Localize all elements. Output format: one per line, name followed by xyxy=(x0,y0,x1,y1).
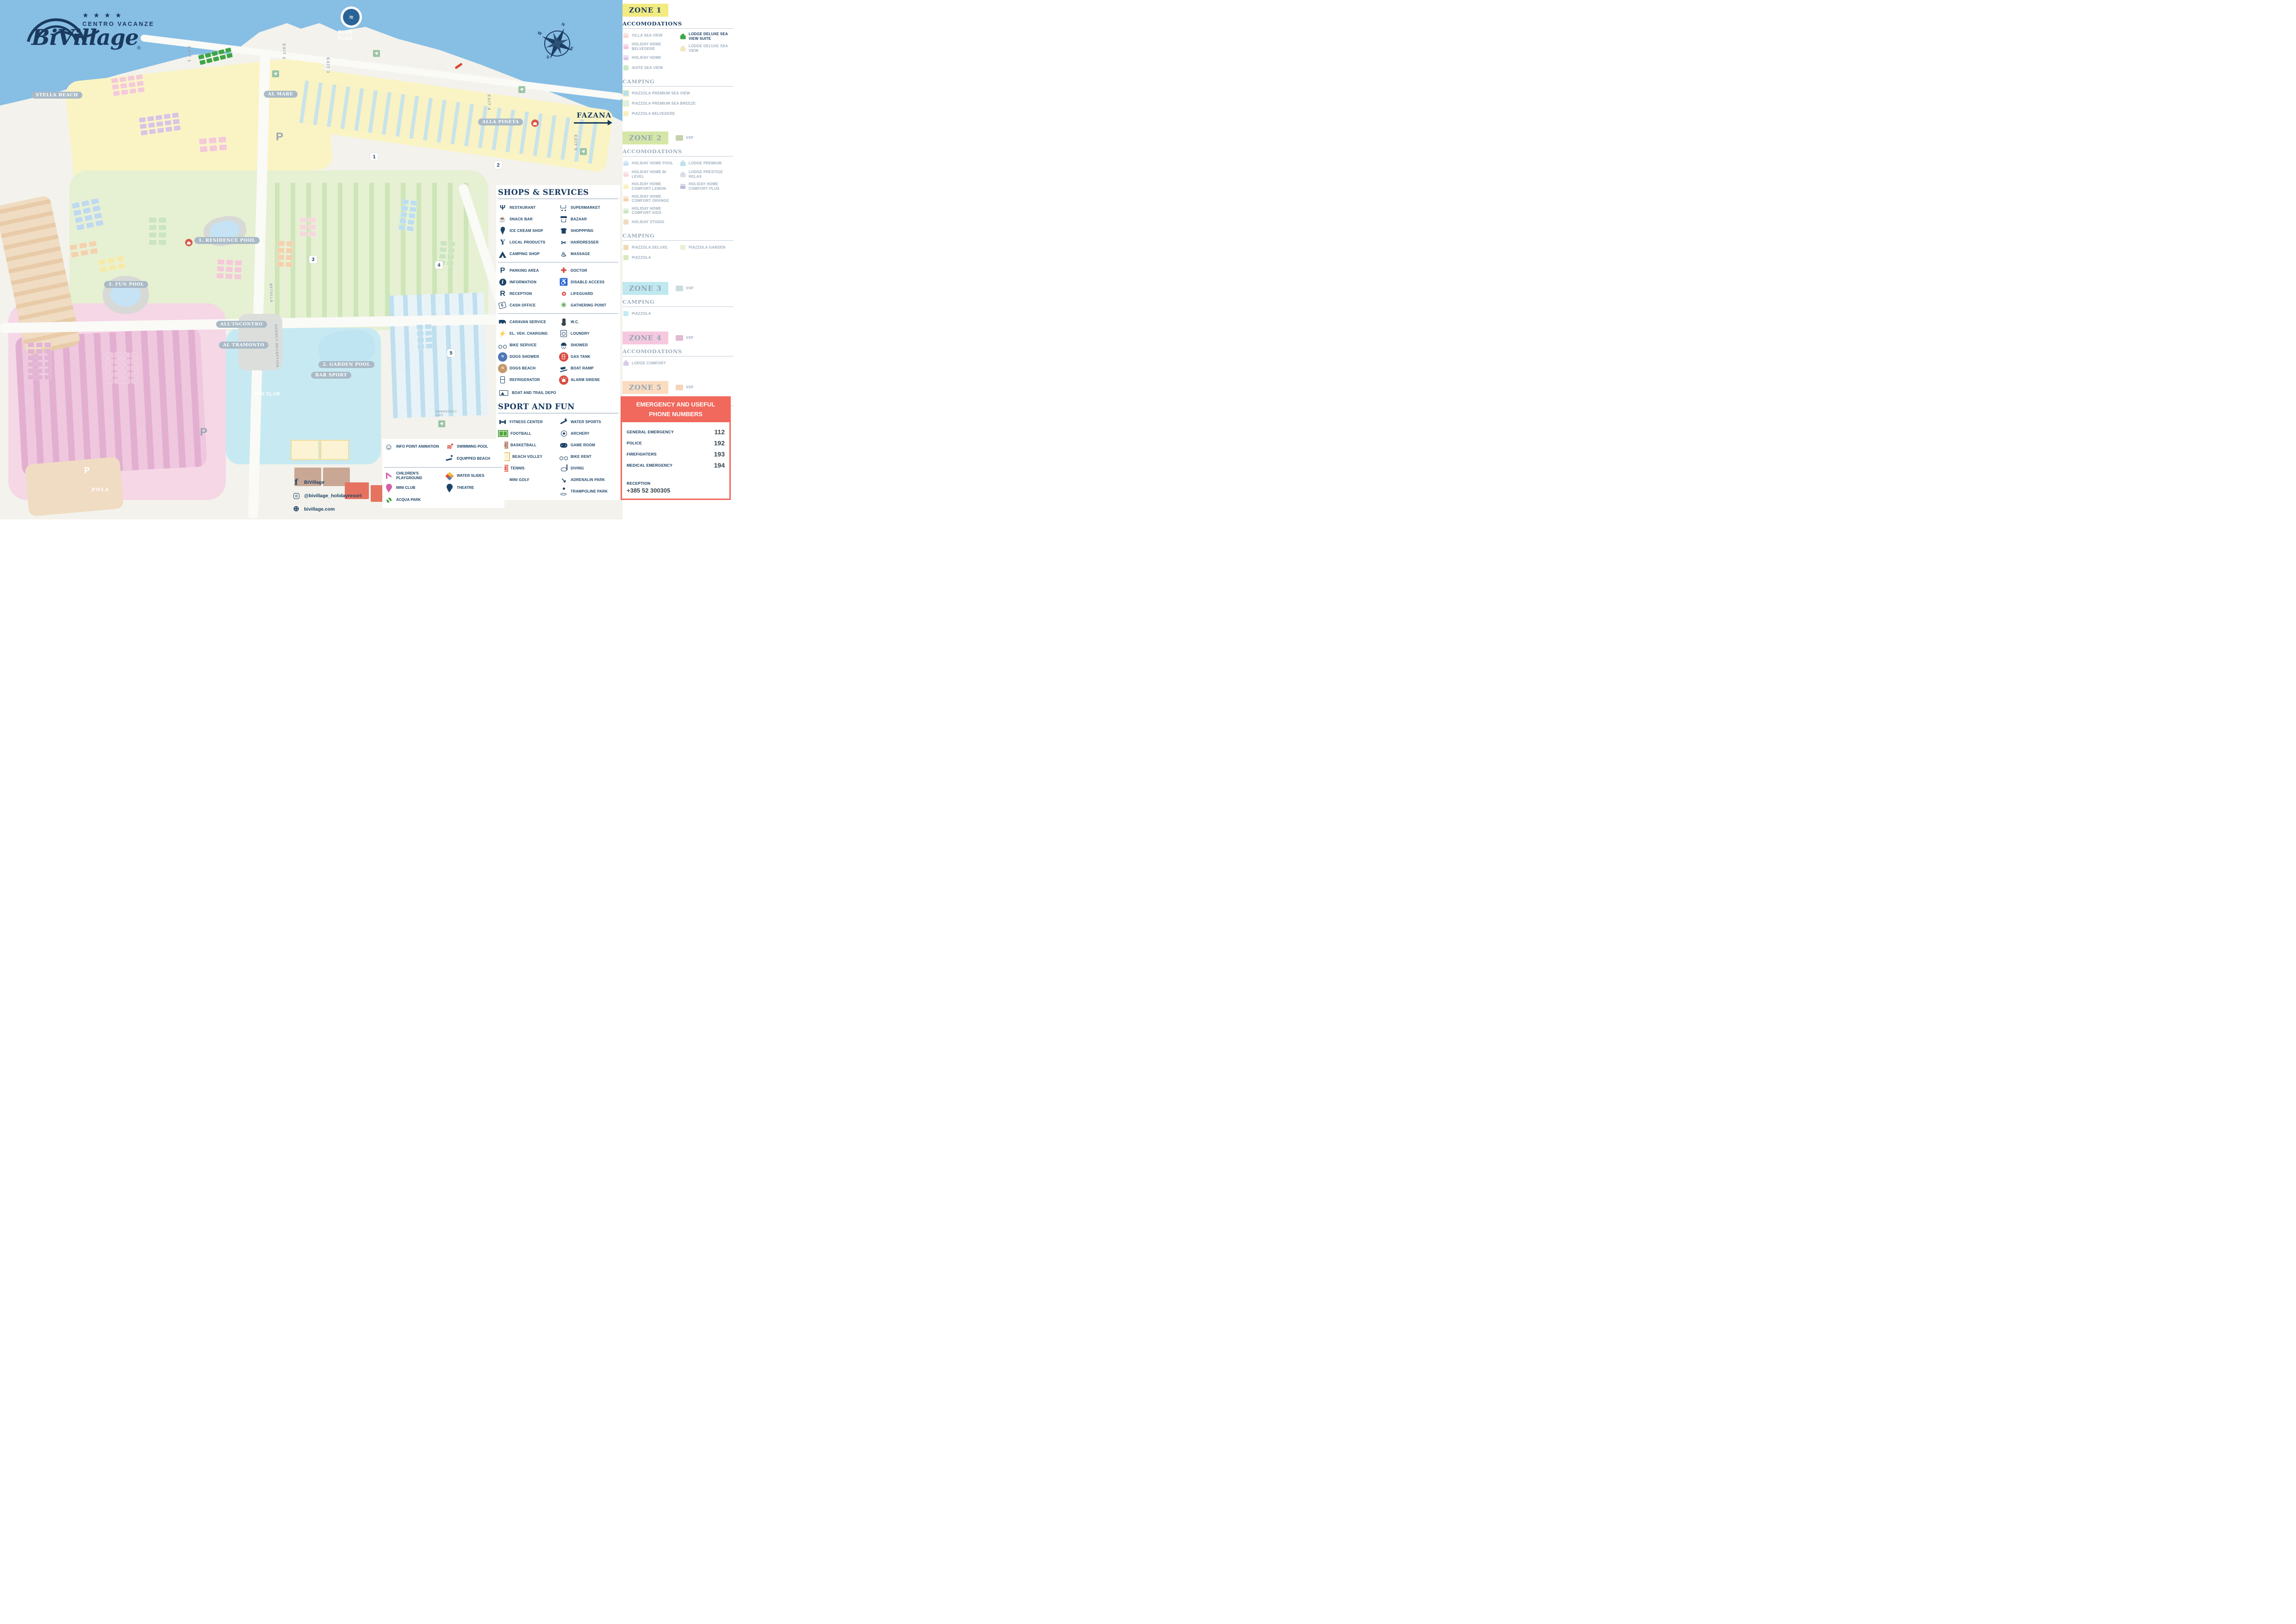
building xyxy=(28,356,34,360)
legend-row: INFO POINT ANIMATION xyxy=(384,441,442,453)
services-groups: RESTAURANTSNACK BARICE CREAM SHOPLOCAL P… xyxy=(498,202,618,399)
legend-label: SHOPPPING xyxy=(571,229,593,233)
information-icon xyxy=(498,278,507,287)
building xyxy=(44,349,51,354)
gathering-point-icon xyxy=(559,301,568,310)
building xyxy=(36,369,43,373)
building xyxy=(136,75,143,80)
building xyxy=(164,120,171,125)
zone-3-legend: ZONE 3VXPCAMPINGPIAZZOLA xyxy=(622,282,734,320)
legend-label: LODGE PREMIUM xyxy=(689,161,722,166)
vxp-label: VXP xyxy=(686,136,694,140)
legend-label: LODGE COMFORT xyxy=(632,361,666,366)
legend-row: WATER SLIDES xyxy=(445,470,503,482)
legend-label: VILLA SEA VIEW xyxy=(632,33,663,38)
building xyxy=(106,353,113,357)
building xyxy=(131,379,138,383)
legend-label: FITNESS CENTER xyxy=(510,420,543,424)
emergency-row: MEDICAL EMERGENCY194 xyxy=(627,462,725,469)
legend-row: BEACH VOLLEY xyxy=(498,451,557,462)
divider xyxy=(384,467,503,468)
building xyxy=(44,362,51,367)
building xyxy=(286,241,293,247)
social-link[interactable]: @bivillage_holidayresort xyxy=(292,491,380,500)
zone-badge-row: ZONE 5VXP xyxy=(622,381,734,394)
legend-row: TENNIS xyxy=(498,462,557,474)
services-group: RESTAURANTSNACK BARICE CREAM SHOPLOCAL P… xyxy=(498,202,618,260)
emergency-service-label: MEDICAL EMERGENCY xyxy=(627,463,672,468)
legend-item: HOLIDAY HOME COMFORT PLUS xyxy=(679,182,734,191)
building xyxy=(277,248,284,253)
legend-row: BAZAAR xyxy=(559,213,618,225)
section-header: CAMPING xyxy=(622,299,734,307)
swatch-wrap xyxy=(679,244,686,251)
blue-flag-icon: ≈ xyxy=(341,6,362,28)
legend-row: BOAT RAMP xyxy=(559,362,618,374)
swatch-wrap xyxy=(679,171,686,178)
el-veh-charging-icon xyxy=(498,329,507,338)
building xyxy=(106,359,113,364)
services-col-right: DOCTORDISABLE ACCESSLIFEGUARDGATHERING P… xyxy=(559,265,618,311)
swatch-wrap xyxy=(622,64,629,71)
building xyxy=(448,248,455,253)
emergency-row: GENERAL EMERGENCY112 xyxy=(627,428,725,436)
legend-label: LOUNDRY xyxy=(571,331,590,336)
caravan-service-icon xyxy=(498,318,507,327)
building xyxy=(209,145,217,151)
compass-letter-E: E xyxy=(570,46,574,51)
building xyxy=(128,75,135,81)
building xyxy=(234,274,242,280)
map-label-all-incontro: ALL'INCONTRO xyxy=(216,321,267,328)
section-header: ACCOMODATIONS xyxy=(622,20,734,29)
legend-row: LOUNDRY xyxy=(559,328,618,339)
legend-item: HOLIDAY STUDIO xyxy=(622,219,677,225)
legend-item: VILLA SEA VIEW xyxy=(622,32,677,39)
legend-item: LODGE COMFORT xyxy=(622,360,734,367)
reception-number: +385 52 300305 xyxy=(627,487,670,494)
blue-flag-label: BLUE FLAG xyxy=(338,30,359,41)
services-title: SHOPS & SERVICES xyxy=(498,188,618,199)
activities-col: INFO POINT ANIMATION xyxy=(384,441,442,465)
building xyxy=(448,242,455,247)
building xyxy=(28,343,34,347)
swatch-wrap xyxy=(622,195,629,202)
emergency-phone-number: 194 xyxy=(714,462,725,469)
zone-2-legend: ZONE 2VXPACCOMODATIONSHOLIDAY HOME POOLH… xyxy=(622,131,734,264)
reception-label: RECEPTION xyxy=(627,481,725,486)
building xyxy=(402,199,409,205)
building xyxy=(217,273,224,279)
color-swatch xyxy=(623,360,629,366)
building xyxy=(36,343,43,347)
activities-col: CHILDREN'S PLAYGROUNDMINI CLUBACQUA PARK xyxy=(384,470,442,506)
bike-service-icon xyxy=(498,341,507,350)
activities-row1: INFO POINT ANIMATIONSWIMMING POOLEQUIPPE… xyxy=(384,441,503,465)
social-label: bivillage.com xyxy=(304,506,335,512)
legend-label: MASSAGE xyxy=(571,252,590,256)
building xyxy=(149,240,156,245)
emergency-service-label: POLICE xyxy=(627,441,642,445)
building xyxy=(278,241,285,246)
legend-column: PIAZZOLA GARDEN xyxy=(679,244,734,264)
building xyxy=(425,337,432,342)
legend-row: CARAVAN SERVICE xyxy=(498,316,557,328)
social-link[interactable]: bivillage.com xyxy=(292,505,380,514)
building xyxy=(172,112,179,118)
zone-badge-row: ZONE 2VXP xyxy=(622,131,734,144)
building xyxy=(140,124,147,129)
color-swatch xyxy=(623,219,628,225)
color-swatch xyxy=(623,172,628,177)
building xyxy=(159,218,166,223)
building xyxy=(120,83,127,88)
zone-marker-5: 5 xyxy=(447,349,455,357)
emergency-numbers-box: EMERGENCY AND USEFUL PHONE NUMBERS GENER… xyxy=(621,396,731,500)
legend-row: LOCAL PRODUCTS xyxy=(498,237,557,248)
building xyxy=(425,331,432,336)
building xyxy=(286,248,293,254)
legend-label: HOLIDAY HOME COMFORT LEMON xyxy=(632,182,677,191)
legend-label: BIKE RENT xyxy=(571,455,591,459)
shower-icon xyxy=(559,341,568,350)
building xyxy=(115,379,121,383)
vxp-item: VXP xyxy=(676,385,694,390)
zone-marker-1: 1 xyxy=(370,153,378,161)
legend-label: EL. VEH. CHARGING xyxy=(510,331,548,336)
building xyxy=(28,375,34,380)
building xyxy=(226,260,233,265)
legend-row: BOAT AND TRAIL DEPO xyxy=(498,387,618,399)
services-col-right: SUPERMARKETBAZAARSHOPPPINGHAIRDRESSERMAS… xyxy=(559,202,618,260)
building xyxy=(36,349,43,354)
building xyxy=(137,87,144,93)
building xyxy=(399,219,406,224)
vxp-swatch xyxy=(676,385,683,390)
boat-ramp-icon xyxy=(559,364,568,373)
legend-row: SNACK BAR xyxy=(498,213,557,225)
legend-row: RESTAURANT xyxy=(498,202,557,213)
emergency-service-label: GENERAL EMERGENCY xyxy=(627,430,674,434)
logo-registered-mark: ® xyxy=(137,45,141,51)
legend-row: GAS TANK xyxy=(559,351,618,362)
building xyxy=(417,344,424,349)
legend-row: SUPERMARKET xyxy=(559,202,618,213)
resort-logo: ★ ★ ★ ★ CENTRO VACANZE BiVillage ® xyxy=(13,3,156,68)
vxp-item: VXP xyxy=(676,286,694,291)
legend-label: SWIMMING POOL xyxy=(457,444,488,449)
legend-label: SUITE SEA VIEW xyxy=(632,66,663,70)
map-label-bar-sport: BAR SPORT xyxy=(311,372,351,379)
legend-column: LODGE COMFORT xyxy=(622,360,734,370)
legend-label: HOLIDAY HOME BI LEVEL xyxy=(632,170,677,179)
building xyxy=(137,81,143,86)
exit-arrow-icon xyxy=(438,420,445,427)
color-swatch xyxy=(623,44,628,49)
exit-label: EXIT 5 xyxy=(573,135,578,151)
parking-area-icon xyxy=(498,266,507,275)
legend-label: THEATRE xyxy=(457,486,474,490)
building xyxy=(219,144,227,150)
legend-label: RECEPTION xyxy=(510,292,532,296)
legend-row: DOCTOR xyxy=(559,265,618,276)
vxp-label: VXP xyxy=(686,385,694,390)
camping-shop-icon xyxy=(498,250,507,259)
map-label-residence-pool: 1. RESIDENCE POOL xyxy=(194,237,260,244)
legend-label: PIAZZOLA xyxy=(632,256,651,260)
legend-columns: LODGE COMFORT xyxy=(622,360,734,370)
legend-column: PIAZZOLA PREMIUM SEA VIEWPIAZZOLA PREMIU… xyxy=(622,90,734,120)
zone2-pitches-teal xyxy=(389,293,488,418)
legend-label: HOLIDAY STUDIO xyxy=(632,220,664,225)
building xyxy=(417,337,424,343)
color-swatch xyxy=(680,172,686,177)
building xyxy=(115,359,121,364)
color-swatch xyxy=(680,34,686,39)
building xyxy=(149,129,156,134)
legend-label: HOLIDAY HOME COMFORT PLUS xyxy=(689,182,734,191)
emergency-service-label: FIREFIGHTERS xyxy=(627,452,657,456)
compass-ring xyxy=(540,26,574,61)
zone-badge: ZONE 1 xyxy=(622,4,668,17)
snack-bar-icon xyxy=(498,215,507,224)
trampoline-park-icon xyxy=(559,487,568,496)
building xyxy=(159,225,166,230)
zone-marker-3: 3 xyxy=(309,256,317,263)
legend-item: PIAZZOLA BELVEDERE xyxy=(622,110,734,117)
restaurant-icon xyxy=(498,203,507,212)
logo-stars: ★ ★ ★ ★ xyxy=(82,11,123,19)
building xyxy=(163,114,170,119)
zone-marker-2: 2 xyxy=(494,161,502,169)
disable-access-icon xyxy=(559,278,568,287)
gas-tank-icon xyxy=(559,352,568,362)
mini-club-icon xyxy=(384,483,393,493)
legend-label: DIVING xyxy=(571,466,584,470)
swatch-wrap xyxy=(622,54,629,61)
building xyxy=(226,267,233,272)
legend-label: DISABLE ACCESS xyxy=(571,280,604,284)
legend-label: HOLIDAY HOME BELVEDERE xyxy=(632,42,677,51)
color-swatch xyxy=(623,111,628,116)
hairdresser-icon xyxy=(559,238,568,247)
building xyxy=(129,82,136,87)
section-header: ACCOMODATIONS xyxy=(622,348,734,356)
supermarket-icon xyxy=(559,203,568,212)
fitness-center-icon xyxy=(498,418,507,427)
legend-row: ACQUA PARK xyxy=(384,494,442,506)
services-panel: SHOPS & SERVICES RESTAURANTSNACK BARICE … xyxy=(496,185,620,500)
legend-row: LIFEGUARD xyxy=(559,288,618,300)
emergency-row: FIREFIGHTERS193 xyxy=(627,450,725,458)
building xyxy=(159,240,166,245)
map-label-pola: POLA xyxy=(92,487,110,493)
zone-4-legend: ZONE 4VXPACCOMODATIONSLODGE COMFORT xyxy=(622,331,734,370)
vxp-swatch xyxy=(676,335,683,341)
legend-row: DISABLE ACCESS xyxy=(559,276,618,288)
building xyxy=(440,241,447,246)
services-col-left: CARAVAN SERVICEEL. VEH. CHARGINGBIKE SER… xyxy=(498,316,557,386)
compass-letter-S: S xyxy=(546,54,550,60)
building xyxy=(131,366,138,370)
legend-row: RECEPTION xyxy=(498,288,557,300)
legend-label: DOGS SHOWER xyxy=(510,355,539,359)
exit-label: EXIT 4 xyxy=(487,94,492,111)
legend-label: HOLIDAY HOME POOL xyxy=(632,161,673,166)
color-swatch xyxy=(680,184,685,189)
alarm-sirene-mark-icon xyxy=(185,239,193,246)
zone-1-legend: ZONE 1ACCOMODATIONSVILLA SEA VIEWHOLIDAY… xyxy=(622,4,734,120)
game-room-icon xyxy=(559,441,568,450)
legend-label: HOLIDAY HOME COMFORT ORANGE xyxy=(632,194,677,203)
color-swatch xyxy=(623,101,628,106)
legend-row: MINI CLUB xyxy=(384,482,442,494)
legend-columns: PIAZZOLA xyxy=(622,310,734,320)
legend-column: PIAZZOLA DELUXEPIAZZOLA xyxy=(622,244,677,264)
building xyxy=(36,356,43,360)
zone-badge: ZONE 5 xyxy=(622,381,668,394)
building xyxy=(217,259,224,265)
archery-icon xyxy=(559,429,568,438)
building xyxy=(44,356,51,360)
color-swatch xyxy=(623,161,628,166)
water-slides-icon xyxy=(445,471,454,481)
legend-label: BASKETBALL xyxy=(510,443,536,447)
emergency-box-title: EMERGENCY AND USEFUL PHONE NUMBERS xyxy=(622,397,730,422)
parking-mark: P xyxy=(84,466,90,475)
legend-label: REFRIGERATOR xyxy=(510,378,540,382)
social-link[interactable]: BiVillage xyxy=(292,478,380,487)
color-swatch xyxy=(623,184,628,189)
legend-row: DIVING xyxy=(559,462,618,474)
building xyxy=(157,128,164,133)
building xyxy=(28,362,34,367)
reception-icon xyxy=(498,289,507,299)
legend-label: CHILDREN'S PLAYGROUND xyxy=(396,471,442,480)
building xyxy=(417,331,424,336)
zone-badge: ZONE 2 xyxy=(622,131,668,144)
local-products-icon xyxy=(498,238,507,247)
legend-item: LODGE DELUXE SEA VIEW xyxy=(679,44,734,53)
legend-label: ACQUA PARK xyxy=(396,498,421,502)
legend-columns: PIAZZOLA DELUXEPIAZZOLAPIAZZOLA GARDEN xyxy=(622,244,734,264)
map-label-al-tramonto: AL TRAMONTO xyxy=(219,342,268,349)
legend-item: PIAZZOLA PREMIUM SEA VIEW xyxy=(622,90,734,97)
adrenalin-park-icon xyxy=(559,475,568,485)
exit-label: EXIT 1 xyxy=(187,46,192,62)
massage-icon xyxy=(559,250,568,259)
legend-column: VILLA SEA VIEWHOLIDAY HOME BELVEDEREHOLI… xyxy=(622,32,677,75)
building xyxy=(277,255,284,260)
legend-row: ARCHERY xyxy=(559,428,618,439)
building xyxy=(417,325,423,330)
building xyxy=(407,226,414,231)
activities-col: WATER SLIDESTHEATRE xyxy=(445,470,503,506)
legend-row: W.C. xyxy=(559,316,618,328)
building xyxy=(131,359,138,364)
section-header: CAMPING xyxy=(622,232,734,241)
legend-label: GATHERING POINT xyxy=(571,303,606,307)
building xyxy=(44,369,51,373)
legend-label: LODGE DELUXE SEA VIEW SUITE xyxy=(689,32,734,41)
legend-item: PIAZZOLA xyxy=(622,254,677,261)
zone5-pola-area xyxy=(25,456,124,516)
building xyxy=(106,366,113,370)
emergency-rows: GENERAL EMERGENCY112POLICE192FIREFIGHTER… xyxy=(622,422,729,476)
street-betulla: BETULLA xyxy=(269,283,274,303)
emergency-exit-label: EMERGENCY EXIT xyxy=(436,410,458,418)
legend-row: WATER SPORTS xyxy=(559,416,618,428)
swatch-wrap xyxy=(622,43,629,50)
legend-row: FOOTBALL xyxy=(498,428,557,439)
legend-label: BOAT AND TRAIL DEPO xyxy=(512,391,556,395)
legend-label: ADRENALIN PARK xyxy=(571,478,605,482)
legend-column: LODGE DELUXE SEA VIEW SUITELODGE DELUXE … xyxy=(679,32,734,75)
zones-legend-column: ZONE 1ACCOMODATIONSVILLA SEA VIEWHOLIDAY… xyxy=(622,4,734,431)
legend-row: DOGS SHOWER xyxy=(498,351,557,362)
services-group: CARAVAN SERVICEEL. VEH. CHARGINGBIKE SER… xyxy=(498,316,618,399)
building xyxy=(141,130,148,136)
color-swatch xyxy=(623,196,628,201)
legend-label: PIAZZOLA GARDEN xyxy=(689,245,726,250)
building xyxy=(36,362,43,367)
legend-row: TRAMPOLINE PARK xyxy=(559,486,618,497)
legend-columns: HOLIDAY HOME POOLHOLIDAY HOME BI LEVELHO… xyxy=(622,160,734,229)
legend-label: GAME ROOM xyxy=(571,443,595,447)
swatch-wrap xyxy=(622,310,629,317)
legend-label: MINI GOLF xyxy=(510,478,529,482)
emergency-title-line1: EMERGENCY AND USEFUL xyxy=(623,400,728,410)
legend-label: CAMPING SHOP xyxy=(510,252,540,256)
cash-office-icon xyxy=(498,301,507,310)
legend-row: MASSAGE xyxy=(559,248,618,260)
emergency-phone-number: 193 xyxy=(714,450,725,458)
legend-row: BIKE RENT xyxy=(559,451,618,462)
legend-row: PARKING AREA xyxy=(498,265,557,276)
activities-legend: INFO POINT ANIMATIONSWIMMING POOLEQUIPPE… xyxy=(382,439,504,508)
legend-label: CARAVAN SERVICE xyxy=(510,320,546,324)
legend-row: CHILDREN'S PLAYGROUND xyxy=(384,470,442,482)
activities-col: SWIMMING POOLEQUIPPED BEACH xyxy=(445,441,503,465)
legend-column: HOLIDAY HOME POOLHOLIDAY HOME BI LEVELHO… xyxy=(622,160,677,229)
legend-label: LIFEGUARD xyxy=(571,292,593,296)
building xyxy=(115,372,121,377)
reception-phone: RECEPTION +385 52 300305 xyxy=(622,476,729,499)
building xyxy=(112,84,119,90)
legend-row: EL. VEH. CHARGING xyxy=(498,328,557,339)
emergency-phone-number: 192 xyxy=(714,439,725,447)
map-label-fazana: FAZANA xyxy=(577,111,611,119)
legend-item: LODGE PREMIUM xyxy=(679,160,734,167)
legend-item: PIAZZOLA GARDEN xyxy=(679,244,734,251)
legend-row: GAME ROOM xyxy=(559,439,618,451)
building xyxy=(425,324,432,329)
building xyxy=(131,353,138,357)
swatch-wrap xyxy=(622,244,629,251)
building xyxy=(218,137,226,143)
divider xyxy=(498,262,618,262)
building xyxy=(149,225,156,230)
building xyxy=(448,254,454,259)
building xyxy=(199,138,207,144)
zone-badge-row: ZONE 3VXP xyxy=(622,282,734,295)
swatch-wrap xyxy=(622,90,629,97)
shopping-icon xyxy=(559,226,568,236)
football-icon xyxy=(498,430,508,437)
building xyxy=(286,255,293,261)
legend-row: GATHERING POINT xyxy=(559,300,618,311)
map-label-stella-beach: STELLA BEACH xyxy=(31,92,82,99)
